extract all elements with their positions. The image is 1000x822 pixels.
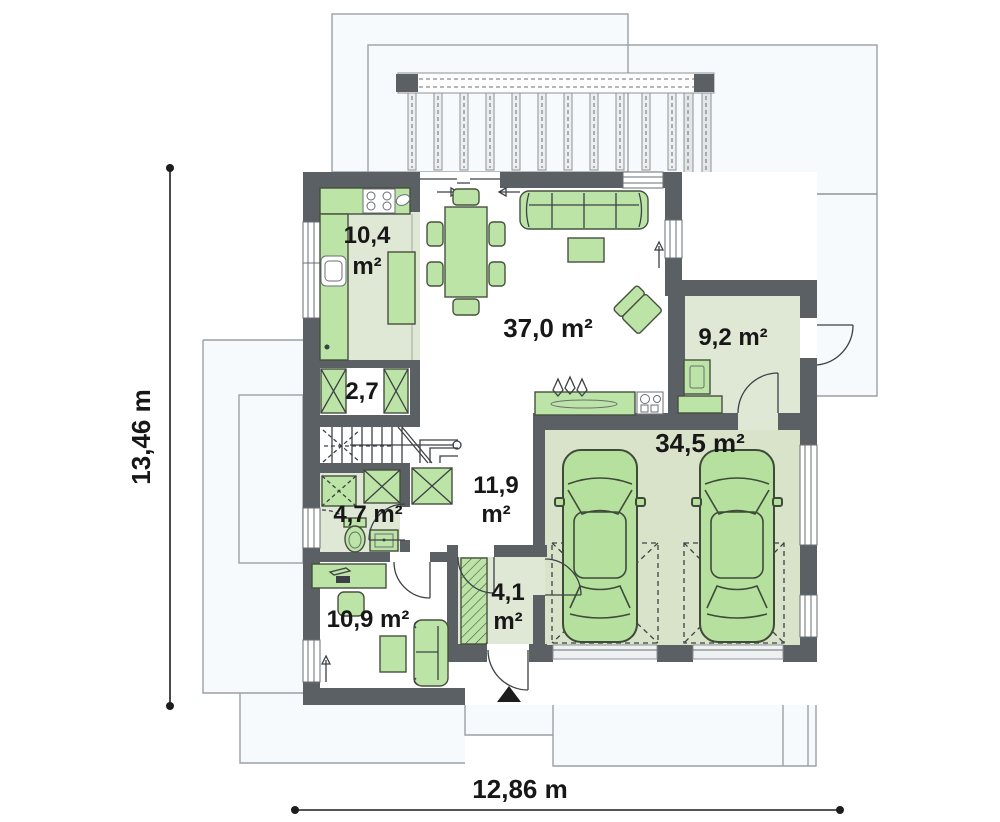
kitchen-window <box>303 222 320 318</box>
pergola-beam-end <box>396 74 418 92</box>
car-2 <box>692 450 782 642</box>
study-window <box>303 640 320 682</box>
hall-wardrobe <box>412 468 452 504</box>
computer-monitor-icon <box>684 360 710 394</box>
vestibule-wardrobe <box>461 558 487 644</box>
garage-door-right <box>693 645 783 659</box>
kitchen-area-label: 10,4 <box>344 222 391 249</box>
floor-plan-page: 10,4 m² 2,7 37,0 m² 9,2 m² 34,5 m² 11,9 … <box>0 0 1000 822</box>
chair <box>489 222 505 246</box>
garage-door-left <box>553 645 657 659</box>
chair <box>489 262 505 286</box>
hall-area-label: 11,9 <box>473 472 518 499</box>
garage-window-1 <box>800 445 817 545</box>
utility-desk <box>678 396 722 413</box>
coffee-table <box>568 238 604 262</box>
kitchen-island <box>388 252 415 324</box>
shower-icon <box>364 470 400 503</box>
wardrobe-cabinet <box>384 369 408 413</box>
chair <box>453 189 479 205</box>
bathroom-window <box>303 508 320 548</box>
chair <box>453 299 479 315</box>
utility-area-label: 9,2 m² <box>698 324 767 351</box>
side-table <box>380 636 406 672</box>
terrace-left <box>203 340 303 693</box>
chair <box>427 262 443 286</box>
chair <box>427 222 443 246</box>
living-area-label: 37,0 m² <box>503 313 593 343</box>
vestibule-area-unit: m² <box>493 608 522 635</box>
garage-area-label: 34,5 m² <box>655 428 745 458</box>
kitchen-sink-icon <box>321 256 346 286</box>
height-dimension-label: 13,46 m <box>126 389 156 484</box>
bathroom-area-label: 4,7 m² <box>333 501 402 528</box>
sofa <box>520 191 648 229</box>
floor-plan-drawing: 10,4 m² 2,7 37,0 m² 9,2 m² 34,5 m² 11,9 … <box>0 0 1000 822</box>
sideboard <box>535 392 635 415</box>
pergola-beam-end <box>694 74 714 92</box>
dining-table <box>445 207 487 297</box>
study-area-label: 10,9 m² <box>327 606 410 633</box>
wardrobe-cabinet <box>321 369 346 413</box>
kitchen-area-unit: m² <box>352 253 381 280</box>
stove-icon <box>363 189 395 213</box>
car-1 <box>555 450 645 642</box>
width-dimension-label: 12,86 m <box>472 774 567 804</box>
garage-window-2 <box>800 595 817 637</box>
closet-area-label: 2,7 <box>345 378 378 405</box>
stove-unit-icon <box>637 392 663 414</box>
small-sofa <box>414 620 448 686</box>
hall-area-unit: m² <box>481 501 510 528</box>
living-top-window <box>623 172 663 188</box>
vestibule-area-label: 4,1 <box>491 579 524 606</box>
living-right-window <box>665 220 682 258</box>
